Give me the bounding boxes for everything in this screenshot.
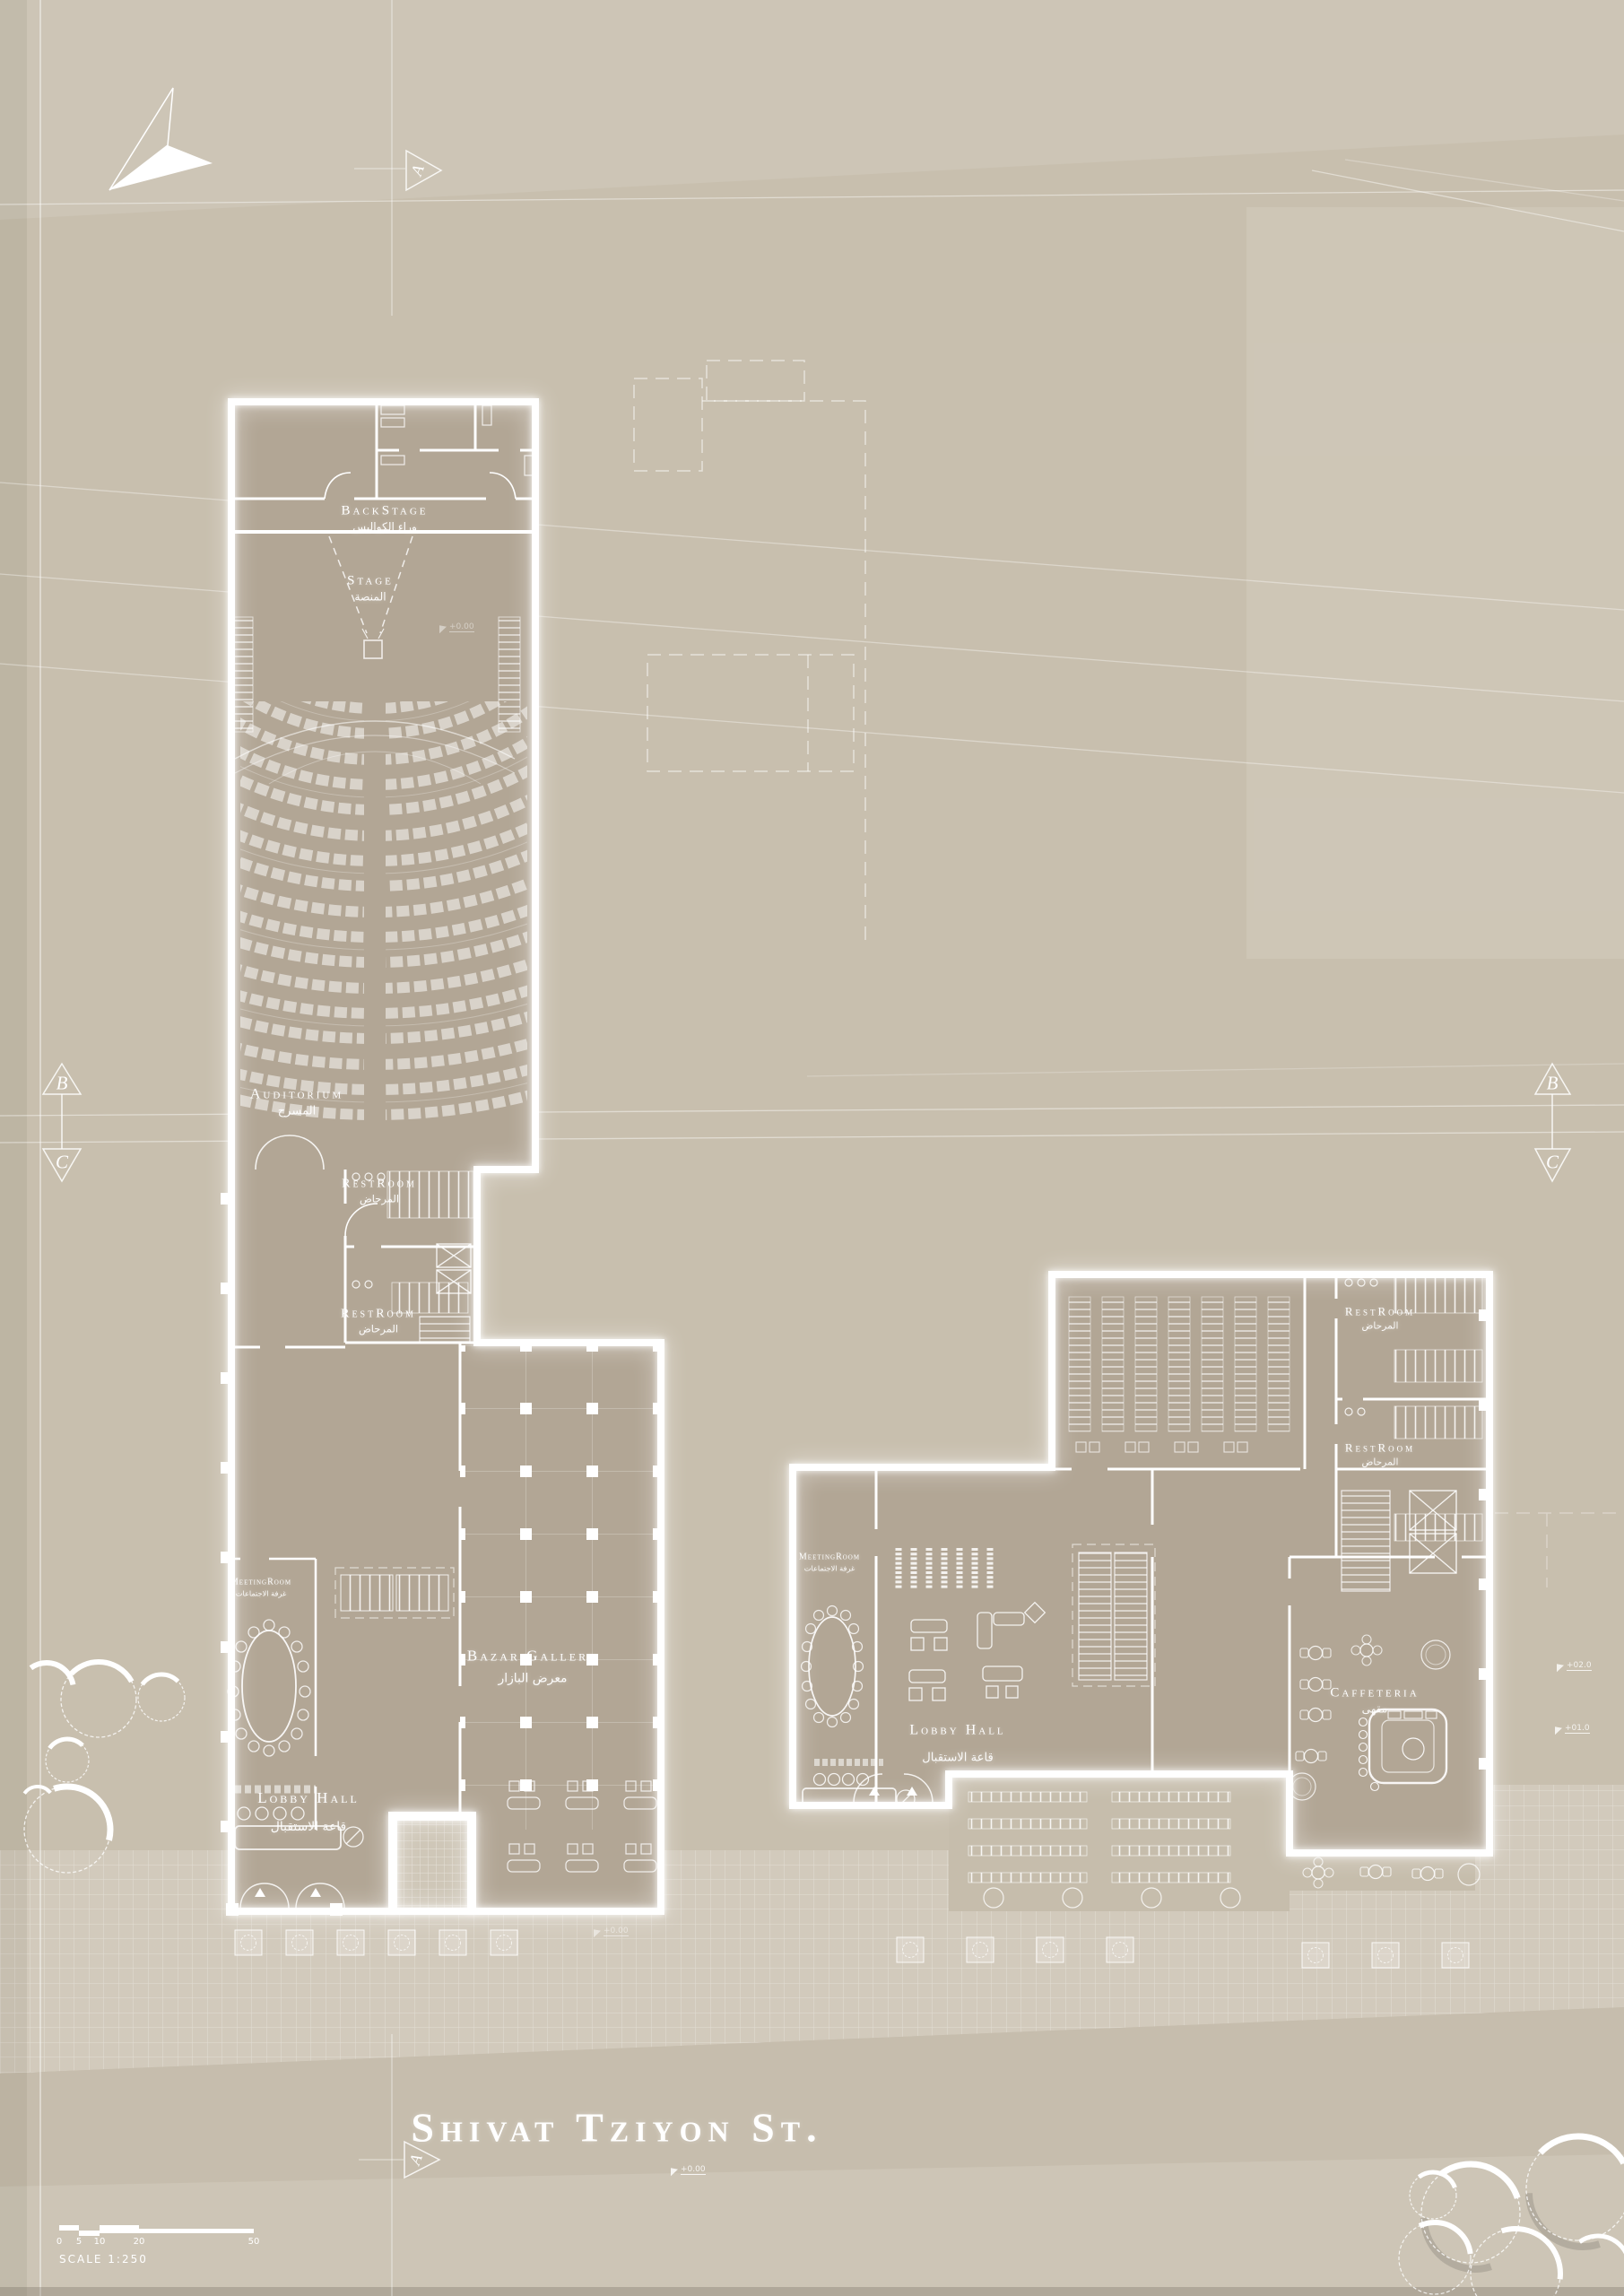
architectural-sheet: BackStage وراء الكواليس Stage المنصة Aud…	[0, 0, 1624, 2296]
room-label-restroom-left-1: RestRoom المرحاض	[342, 1177, 417, 1205]
room-label-lobby-right: Lobby Hall قاعة الاستقبال	[909, 1722, 1005, 1764]
scale-tick-5: 5	[76, 2237, 82, 2247]
room-label-bazar-gallery: Bazar Gallery معرض البازار	[467, 1648, 598, 1686]
room-label-restroom-right-1: RestRoom المرحاض	[1345, 1305, 1415, 1331]
elevation-marker-stage: +0.00	[439, 622, 474, 632]
room-label-restroom-right-2: RestRoom المرحاض	[1345, 1441, 1415, 1467]
elevation-marker-ground-2: +0.00	[594, 1926, 629, 1936]
scale-tick-0: 0	[56, 2237, 62, 2247]
room-label-meeting-right: MeetingRoom غرفة الاجتماعات	[799, 1552, 860, 1573]
elevation-flag-icon	[671, 2166, 678, 2177]
room-label-lobby-left: Lobby Hall قاعة الاستقبال	[257, 1789, 360, 1834]
room-label-auditorium: Auditorium المسرح	[250, 1086, 343, 1118]
room-label-restroom-left-2: RestRoom المرحاض	[341, 1307, 416, 1335]
right-building	[793, 1274, 1490, 1911]
scale-tick-20: 20	[134, 2237, 145, 2247]
scale-tick-50: 50	[248, 2237, 260, 2247]
scale-label: SCALE 1:250	[59, 2253, 148, 2266]
elevation-marker-ground: +0.00	[671, 2165, 706, 2175]
room-label-stage: Stage المنصة	[347, 573, 394, 603]
section-marker-c-left: C	[56, 1152, 68, 1174]
room-label-backstage: BackStage وراء الكواليس	[341, 503, 428, 533]
elevation-flag-icon	[594, 1927, 601, 1938]
section-marker-b-left: B	[56, 1073, 68, 1095]
elevation-marker-first: +01.0	[1555, 1724, 1590, 1734]
street-name: Shivat Tziyon St.	[411, 2104, 822, 2152]
elevation-flag-icon	[1555, 1725, 1562, 1735]
section-marker-c-right: C	[1546, 1152, 1559, 1174]
scale-tick-10: 10	[94, 2237, 106, 2247]
elevation-marker-second: +02.0	[1557, 1661, 1592, 1671]
room-label-caffeteria: Caffeteria مقهى	[1330, 1685, 1419, 1715]
elevation-flag-icon	[439, 623, 447, 634]
floor-plan-drawing	[0, 0, 1624, 2296]
section-marker-b-right: B	[1547, 1073, 1559, 1095]
elevation-flag-icon	[1557, 1662, 1564, 1673]
room-label-meeting-left: MeetingRoom غرفة الاجتماعات	[230, 1578, 291, 1598]
